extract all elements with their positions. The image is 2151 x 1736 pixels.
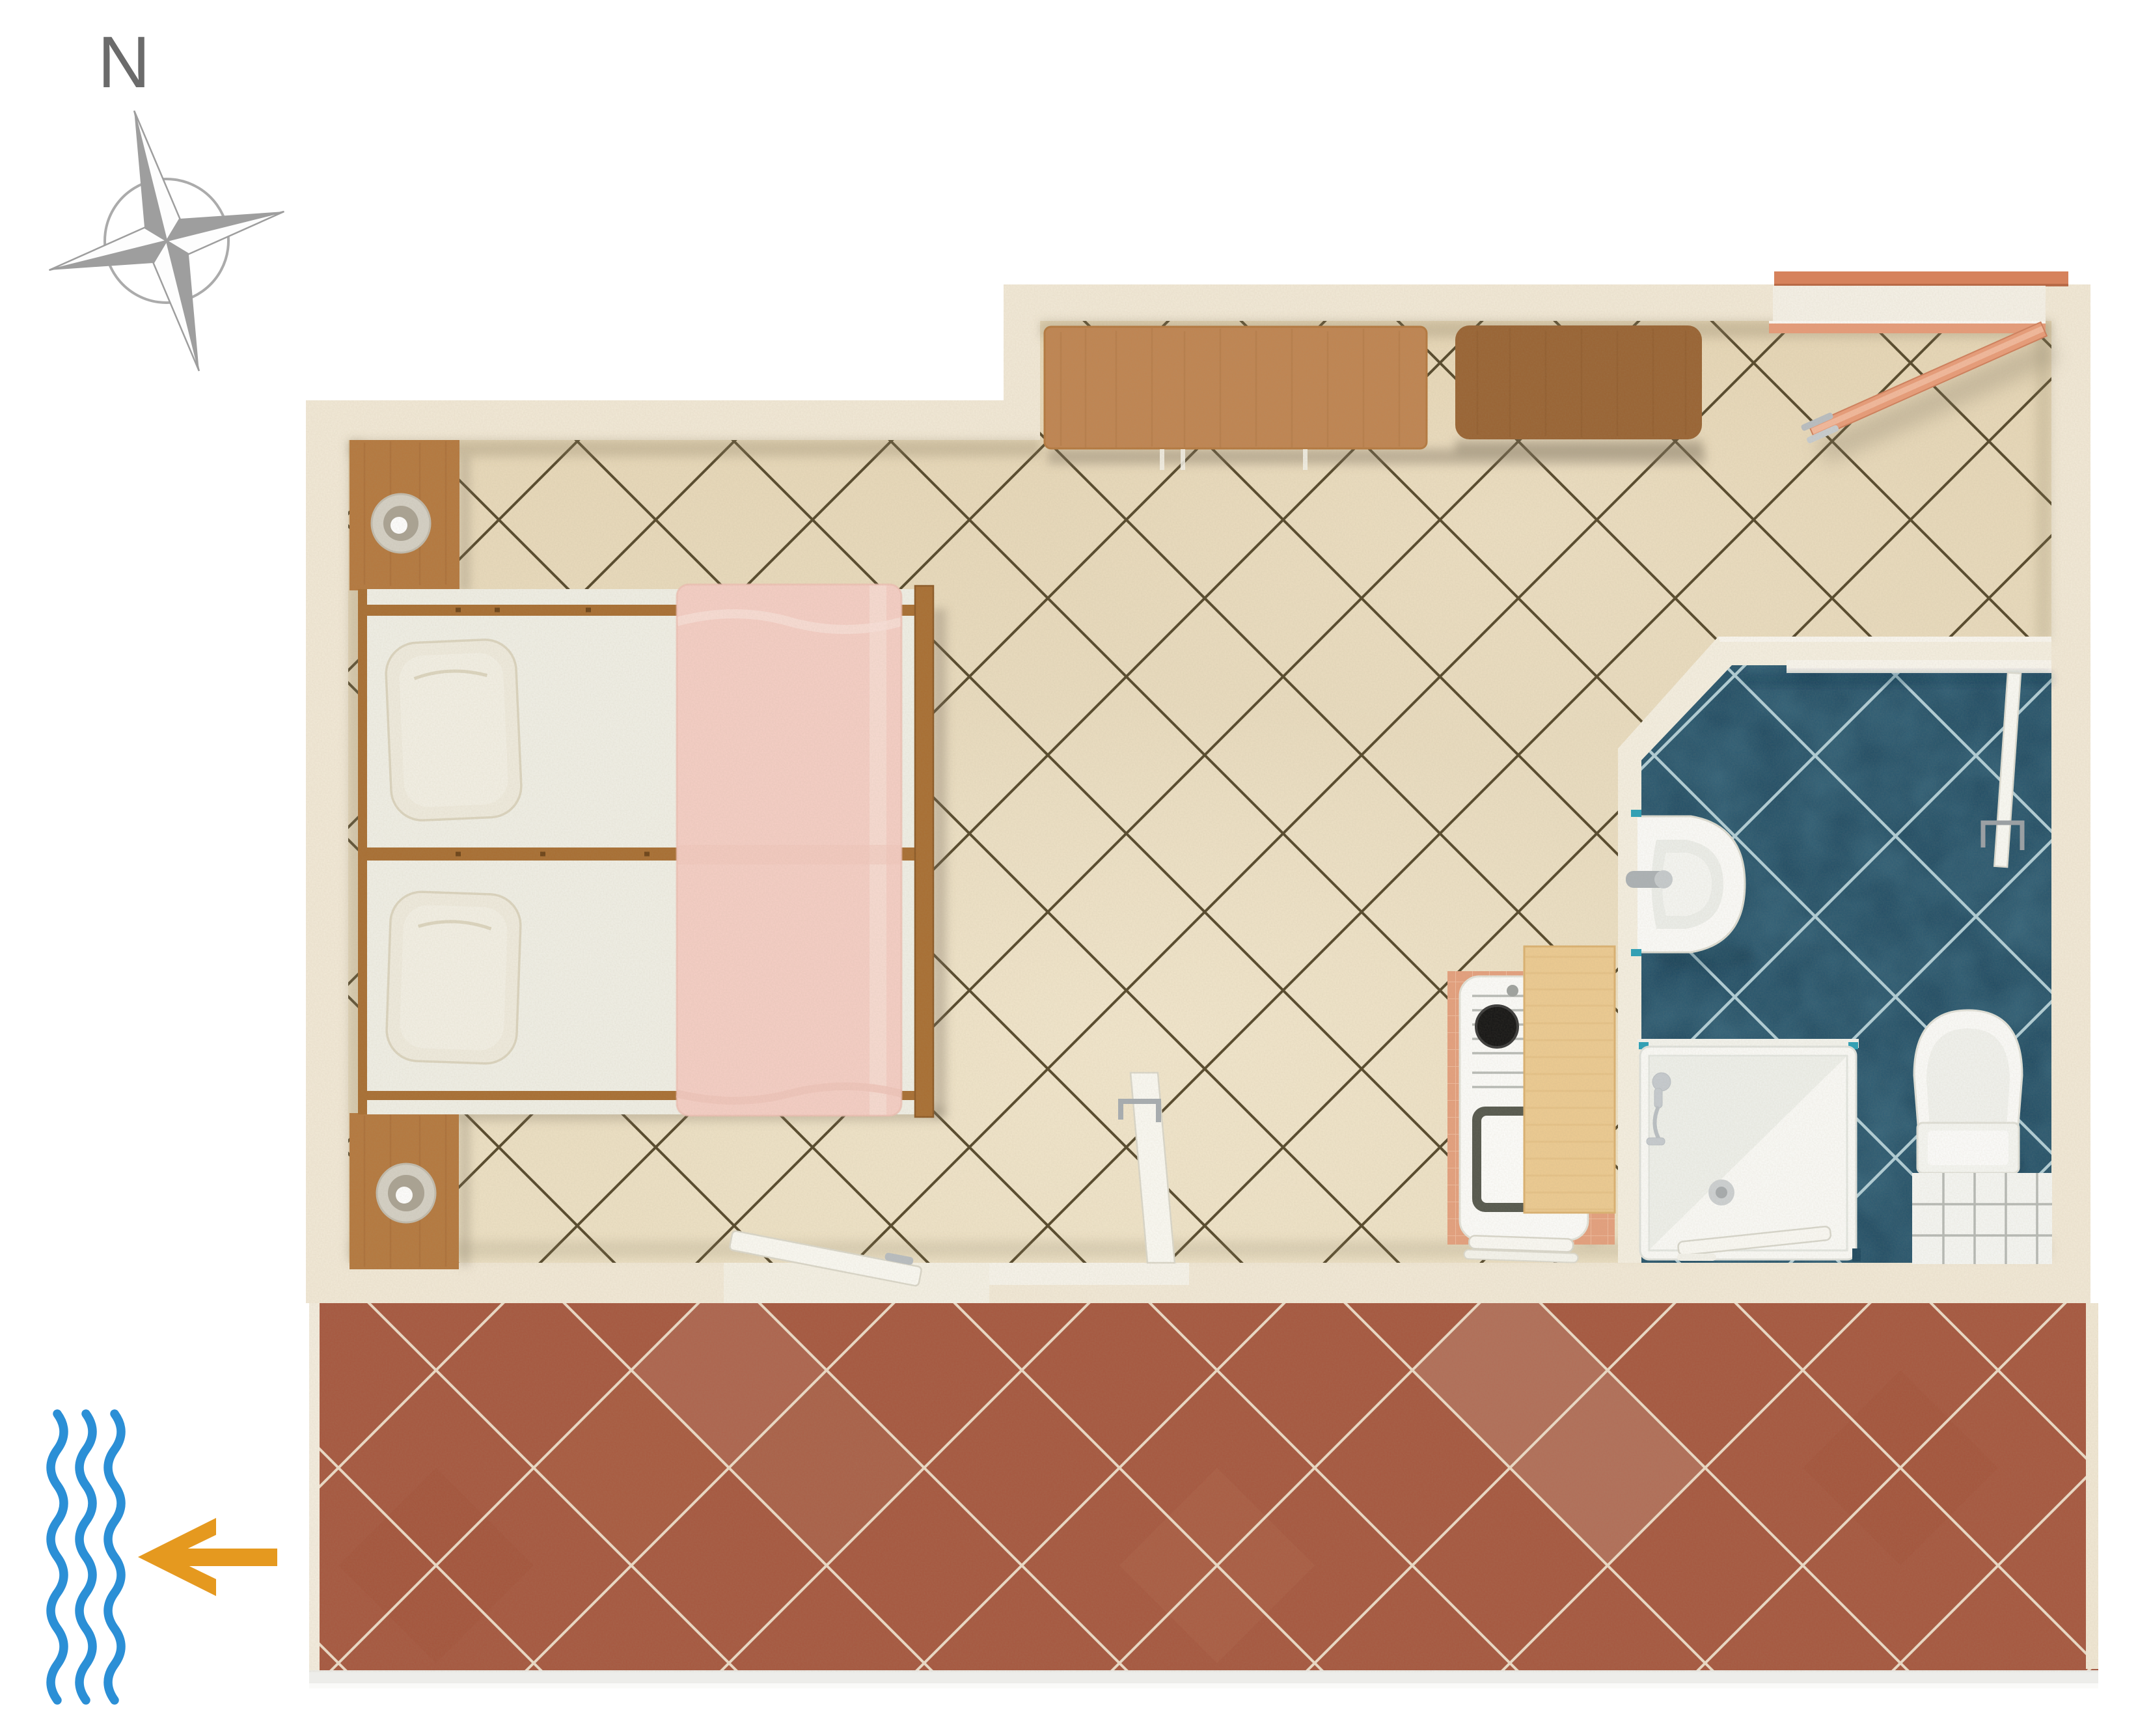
svg-text:N: N [98, 21, 150, 103]
